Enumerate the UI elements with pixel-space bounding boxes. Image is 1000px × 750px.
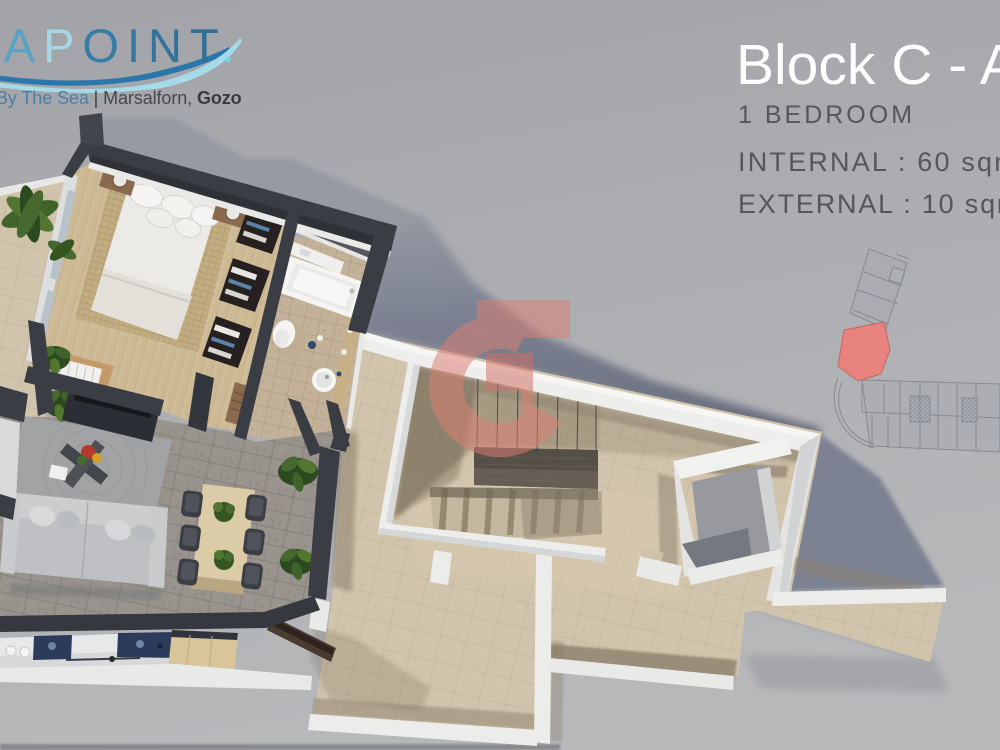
svg-text:1 BEDROOM: 1 BEDROOM <box>738 101 915 129</box>
svg-text:SEAPOINT.: SEAPOINT. <box>0 19 243 72</box>
svg-text:INTERNAL : 60 sqm: INTERNAL : 60 sqm <box>738 147 1000 177</box>
svg-text:EXTERNAL : 10 sqm: EXTERNAL : 10 sqm <box>738 189 1000 219</box>
svg-text:Block C - A1: Block C - A1 <box>736 33 1000 97</box>
svg-text:By The Sea | Marsalforn, Gozo: By The Sea | Marsalforn, Gozo <box>0 88 242 108</box>
